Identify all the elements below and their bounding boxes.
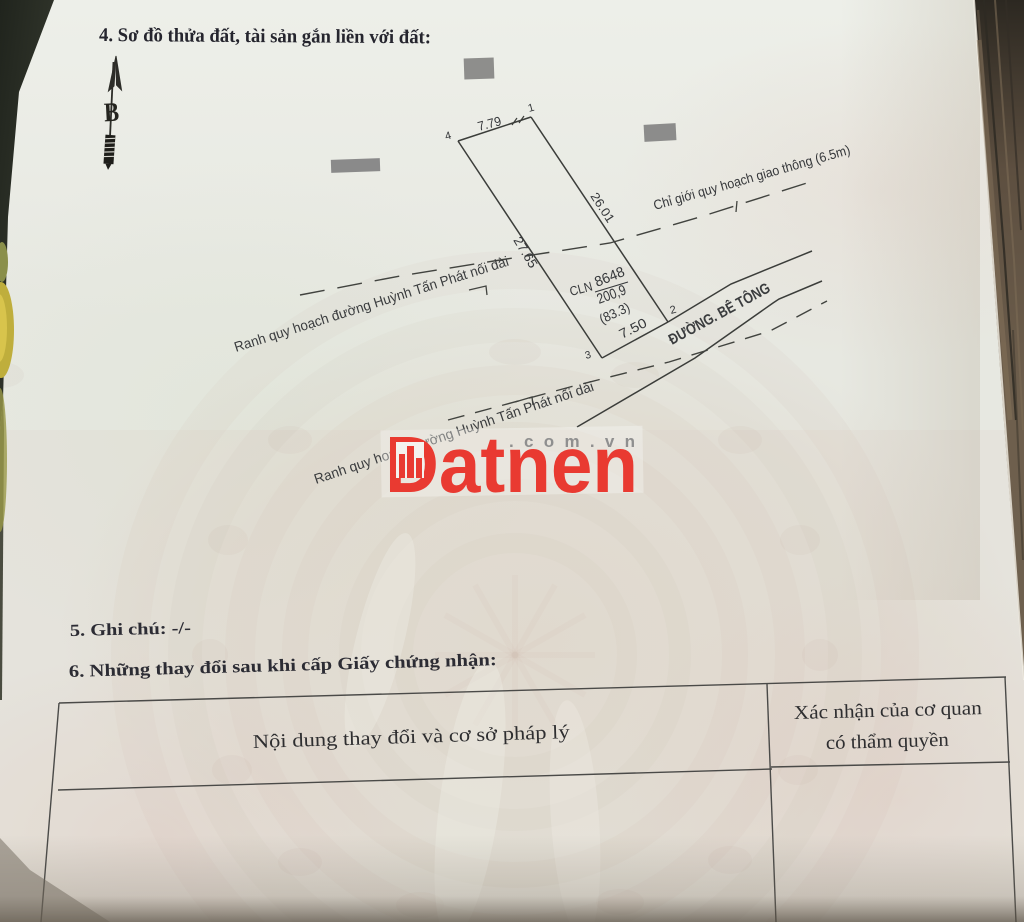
svg-text:có thẩm quyền: có thẩm quyền: [826, 730, 950, 754]
svg-text:B: B: [103, 97, 120, 128]
svg-text:4. Sơ đồ thửa đất, tài sản gắn: 4. Sơ đồ thửa đất, tài sản gắn liền với …: [99, 25, 431, 48]
svg-text:5. Ghi chú: -/-: 5. Ghi chú: -/-: [70, 618, 192, 640]
